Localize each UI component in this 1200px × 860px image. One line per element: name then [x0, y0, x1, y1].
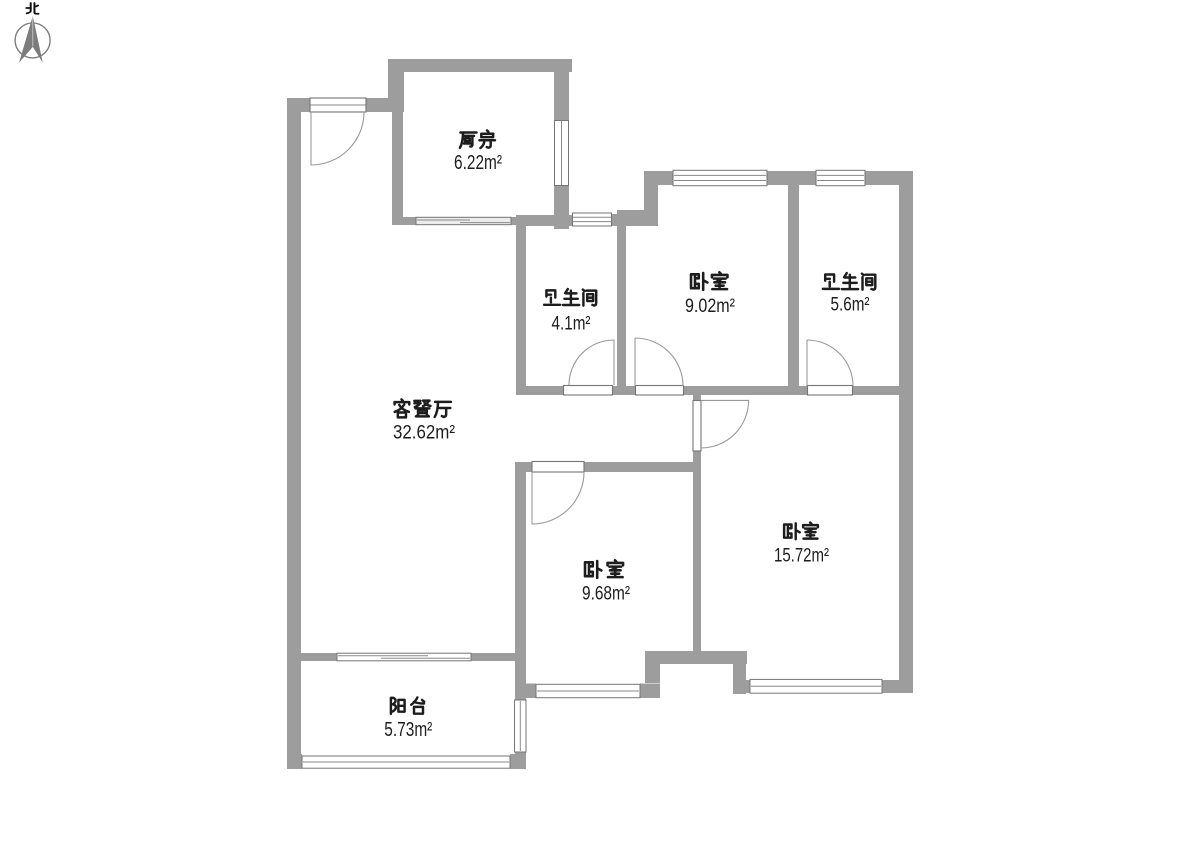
svg-text:4.1m²: 4.1m²: [552, 313, 591, 335]
svg-text:15.72m²: 15.72m²: [774, 546, 829, 567]
svg-text:9.02m²: 9.02m²: [685, 295, 735, 317]
svg-text:5.73m²: 5.73m²: [384, 719, 432, 741]
svg-text:9.68m²: 9.68m²: [582, 583, 630, 605]
svg-text:32.62m²: 32.62m²: [393, 422, 455, 444]
svg-text:5.6m²: 5.6m²: [831, 294, 870, 316]
svg-text:6.22m²: 6.22m²: [454, 152, 502, 174]
